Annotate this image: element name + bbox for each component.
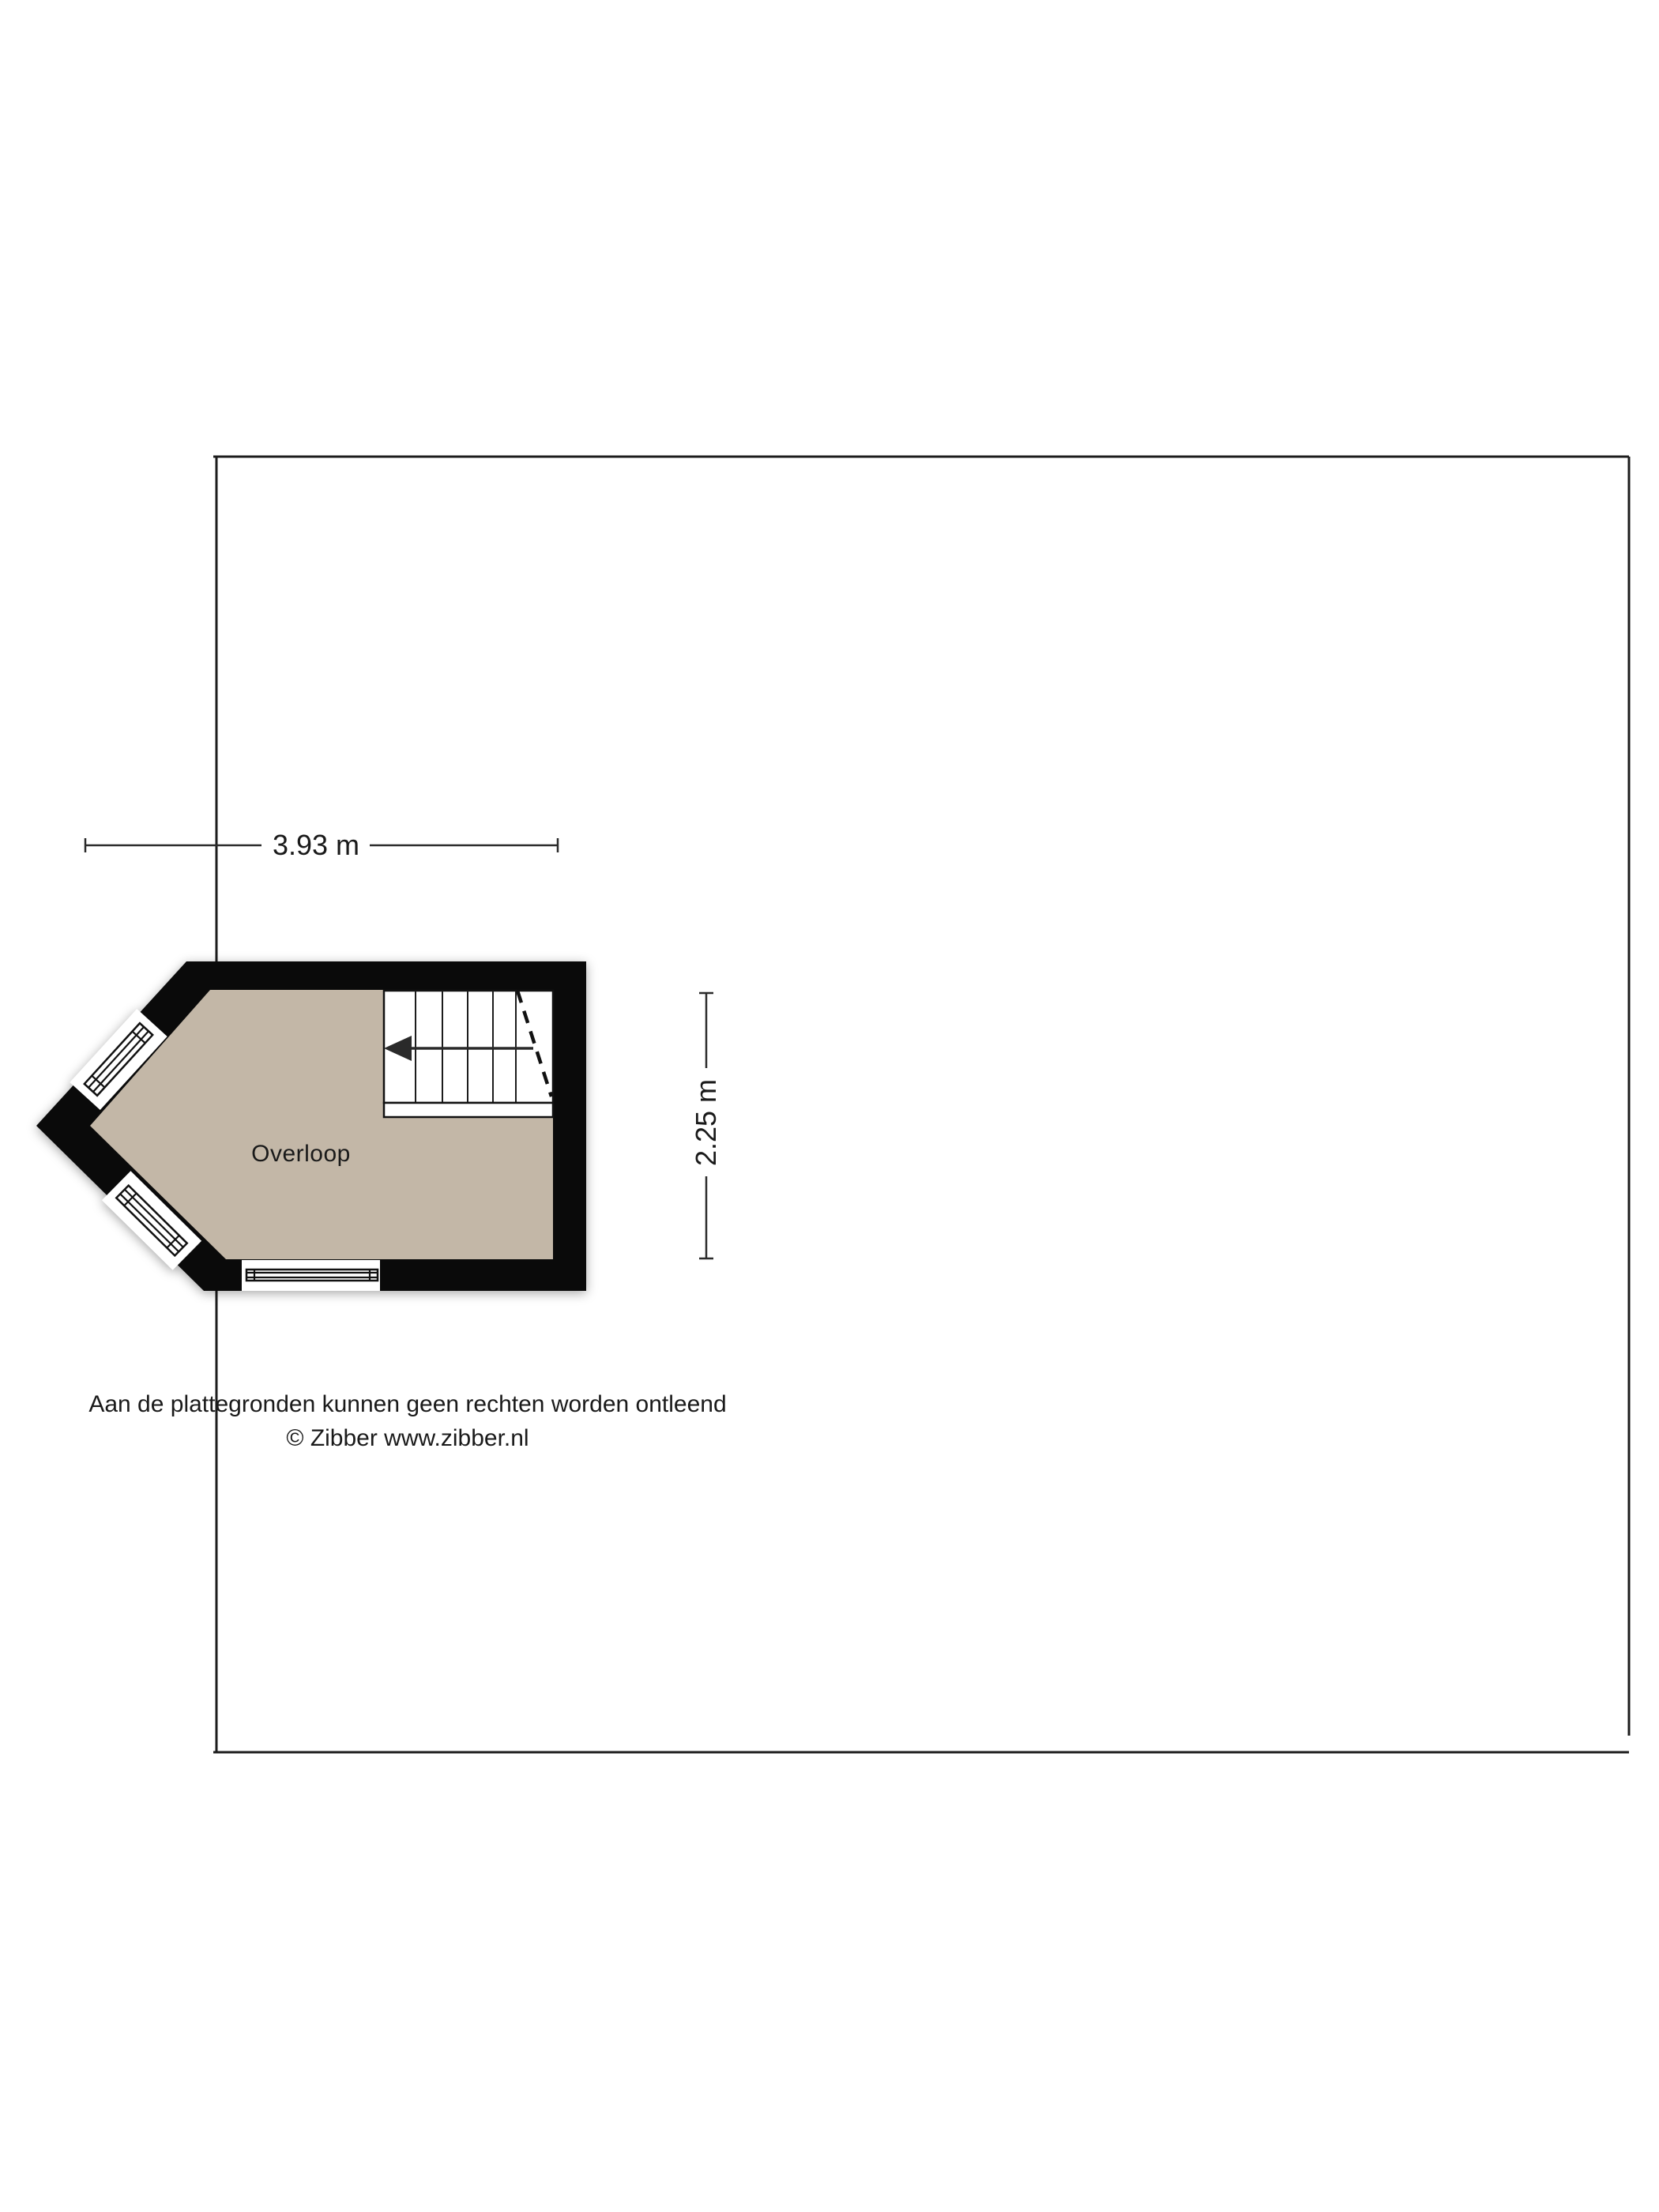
footer: Aan de plattegronden kunnen geen rechten… (88, 1391, 726, 1451)
room-label: Overloop (251, 1141, 351, 1167)
window-bottom (242, 1260, 380, 1291)
floorplan-page: Overloop 3.93 m 2.25 m Aan de plattegron… (0, 0, 1659, 2212)
dimension-width-label: 3.93 m (273, 829, 359, 861)
dimension-height: 2.25 m (690, 993, 722, 1258)
floor-plan: Overloop (36, 961, 586, 1291)
dimension-width: 3.93 m (85, 829, 558, 861)
copyright-text: © Zibber www.zibber.nl (286, 1425, 529, 1451)
dimension-height-label: 2.25 m (690, 1079, 722, 1166)
disclaimer-text: Aan de plattegronden kunnen geen rechten… (88, 1391, 726, 1417)
stairs (384, 991, 553, 1117)
stairs-landing (384, 1103, 553, 1117)
